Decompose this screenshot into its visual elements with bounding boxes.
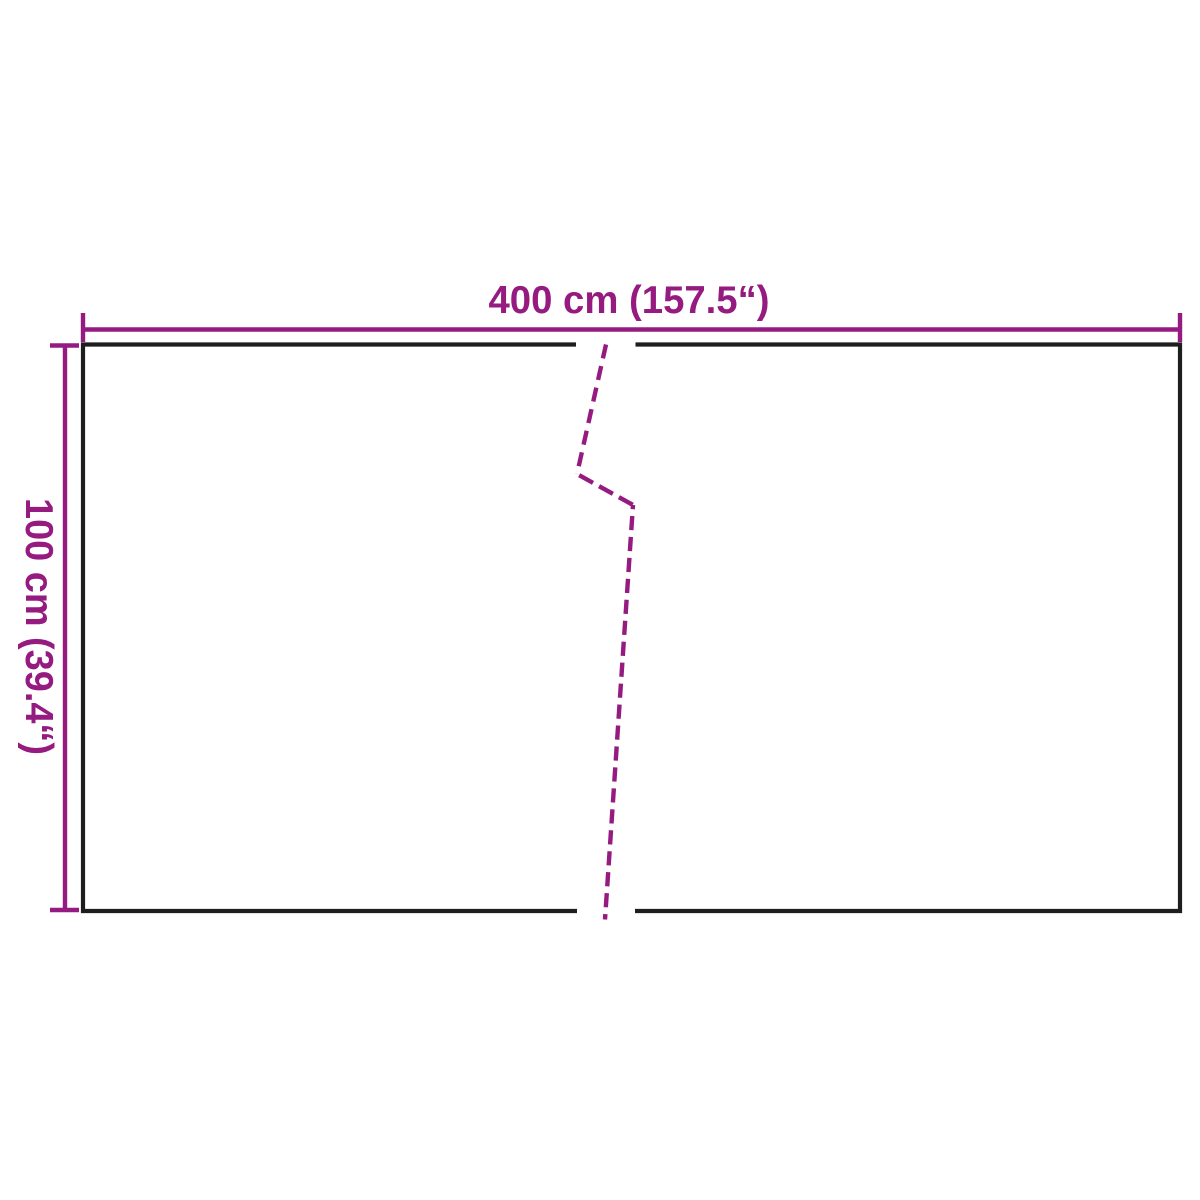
svg-text:400 cm (157.5“): 400 cm (157.5“): [489, 279, 770, 322]
svg-text:100 cm (39.4“): 100 cm (39.4“): [17, 498, 60, 755]
